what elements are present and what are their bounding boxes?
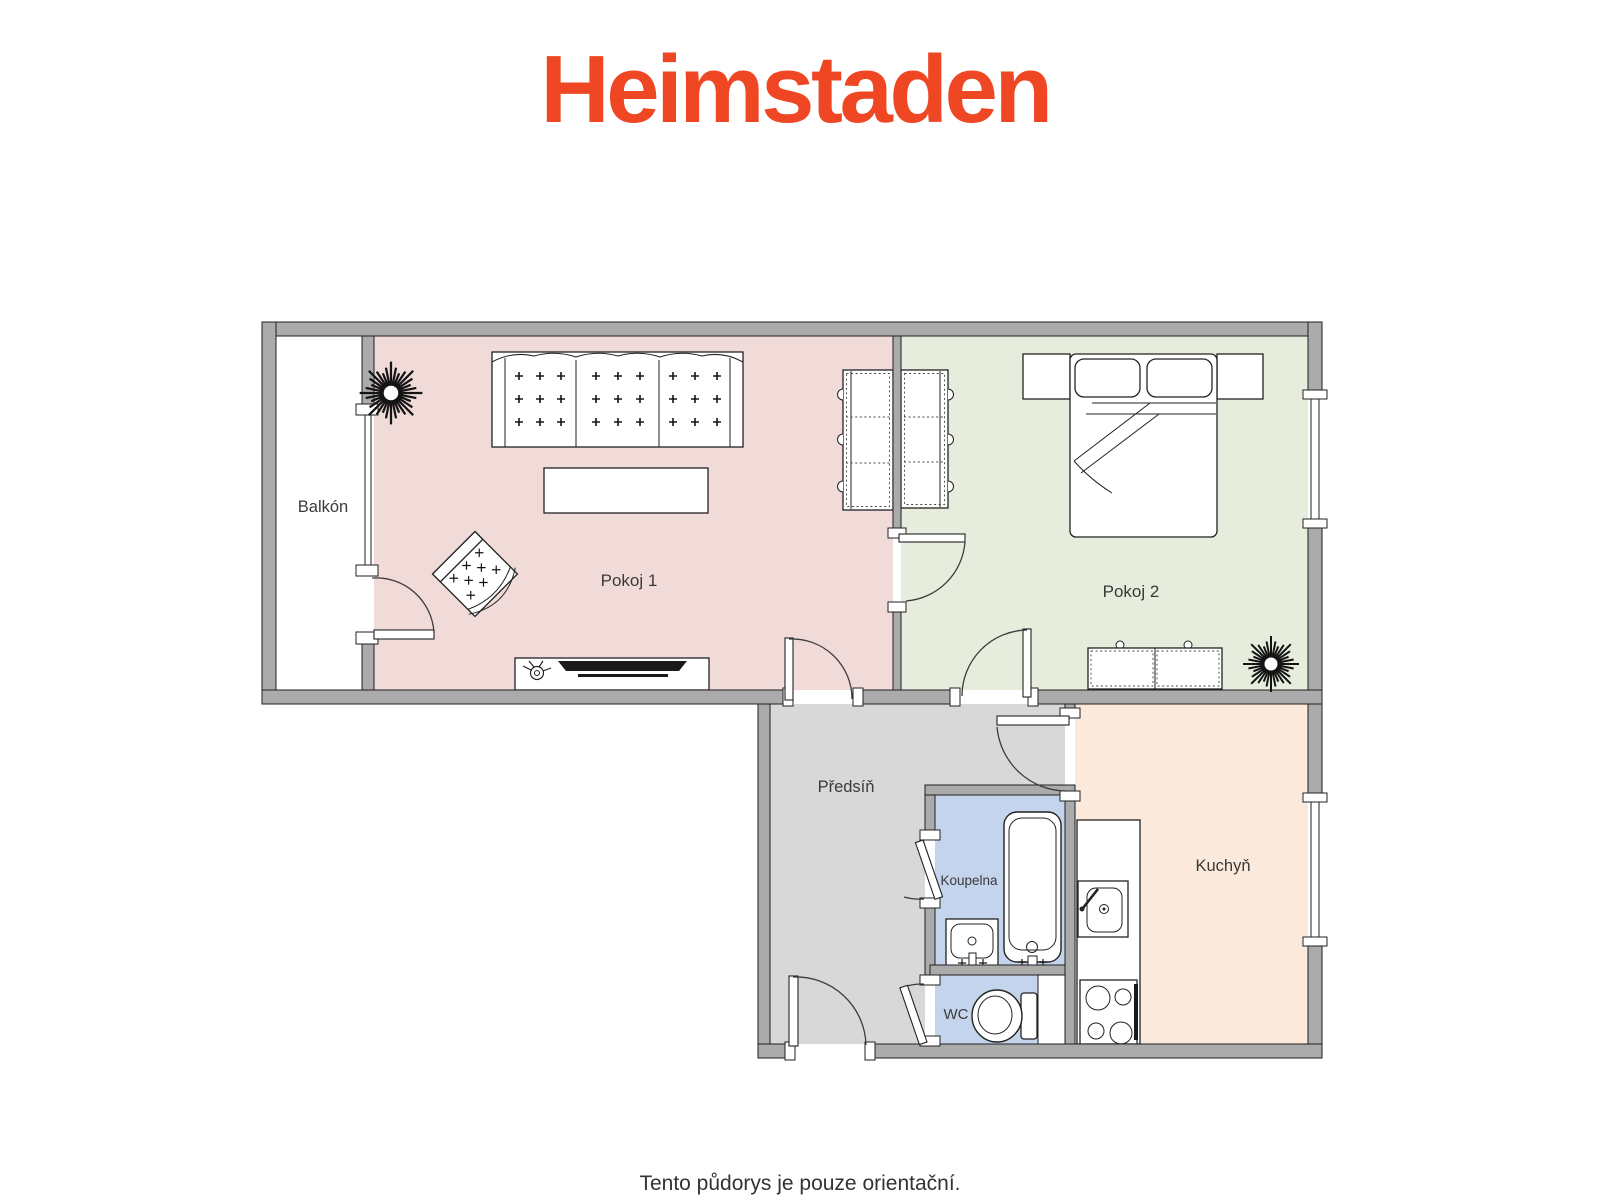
door-jamb	[888, 602, 906, 612]
wardrobe-pokoj1	[838, 370, 893, 510]
dresser	[1088, 641, 1222, 689]
window-sill	[1303, 390, 1327, 399]
wall-topblock-bottom-c	[1028, 690, 1322, 704]
wall-kuchyn-left	[1065, 793, 1075, 1044]
door-jamb	[853, 688, 863, 706]
toilet-icon	[972, 990, 1037, 1042]
label-koupelna: Koupelna	[940, 873, 998, 888]
wall-interroom-bottom	[893, 612, 901, 690]
plant-icon	[360, 362, 423, 425]
wall-outer-right-c	[1308, 940, 1322, 1058]
label-balkon: Balkón	[298, 498, 348, 516]
wall-topblock-bottom-b	[853, 690, 960, 704]
wall-balkon-divider-bottom	[362, 640, 374, 690]
window-sill	[1303, 937, 1327, 946]
bathtub-icon	[1004, 812, 1061, 967]
wall-topblock-bottom-a	[262, 690, 793, 704]
footer-disclaimer: Tento půdorys je pouze orientační.	[639, 1172, 960, 1195]
floor-plan-page: Heimstaden	[0, 0, 1600, 1200]
shaft-niche	[1038, 975, 1065, 1044]
wall-outer-left	[262, 322, 276, 704]
wall-outer-top	[262, 322, 1322, 336]
window-kuchyn	[1311, 800, 1319, 939]
nightstand-right	[1217, 354, 1263, 399]
door-jamb	[950, 688, 960, 706]
window-pokoj2	[1311, 397, 1319, 521]
window-sill	[356, 565, 378, 576]
window-balkon	[365, 415, 371, 567]
wall-predsin-left	[758, 704, 770, 1058]
washbasin-icon	[946, 919, 998, 967]
plant-icon	[1243, 636, 1299, 692]
wall-balkon-divider-top	[362, 336, 374, 406]
wall-interroom-top	[893, 336, 901, 528]
door-jamb	[1060, 791, 1080, 801]
window-sill	[1303, 519, 1327, 528]
door-jamb	[920, 830, 940, 840]
wall-outer-right-b	[1308, 522, 1322, 800]
kitchen-sink-icon	[1078, 881, 1128, 937]
nightstand-left	[1023, 354, 1070, 399]
sofa	[492, 352, 743, 447]
pillow-left	[1075, 359, 1140, 397]
label-pokoj2: Pokoj 2	[1103, 582, 1160, 601]
window-sill	[1303, 793, 1327, 802]
label-pokoj1: Pokoj 1	[601, 571, 658, 590]
pillow-right	[1147, 359, 1212, 397]
tv-stand	[515, 658, 709, 690]
label-predsin: Předsíň	[818, 778, 875, 796]
label-kuchyn: Kuchyň	[1195, 857, 1250, 875]
tv	[558, 661, 687, 671]
floor-plan-canvas: Heimstaden	[0, 0, 1600, 1200]
kitchen-fixtures	[1077, 820, 1140, 1044]
coffee-table	[544, 468, 708, 513]
label-wc: WC	[944, 1006, 969, 1023]
wall-outer-right-a	[1308, 322, 1322, 397]
stove-icon	[1080, 980, 1138, 1044]
double-bed	[1070, 354, 1217, 537]
heimstaden-logo: Heimstaden	[540, 36, 1049, 143]
wall-koupelna-wc-divider	[930, 965, 1065, 975]
wardrobe-pokoj2	[901, 370, 954, 508]
